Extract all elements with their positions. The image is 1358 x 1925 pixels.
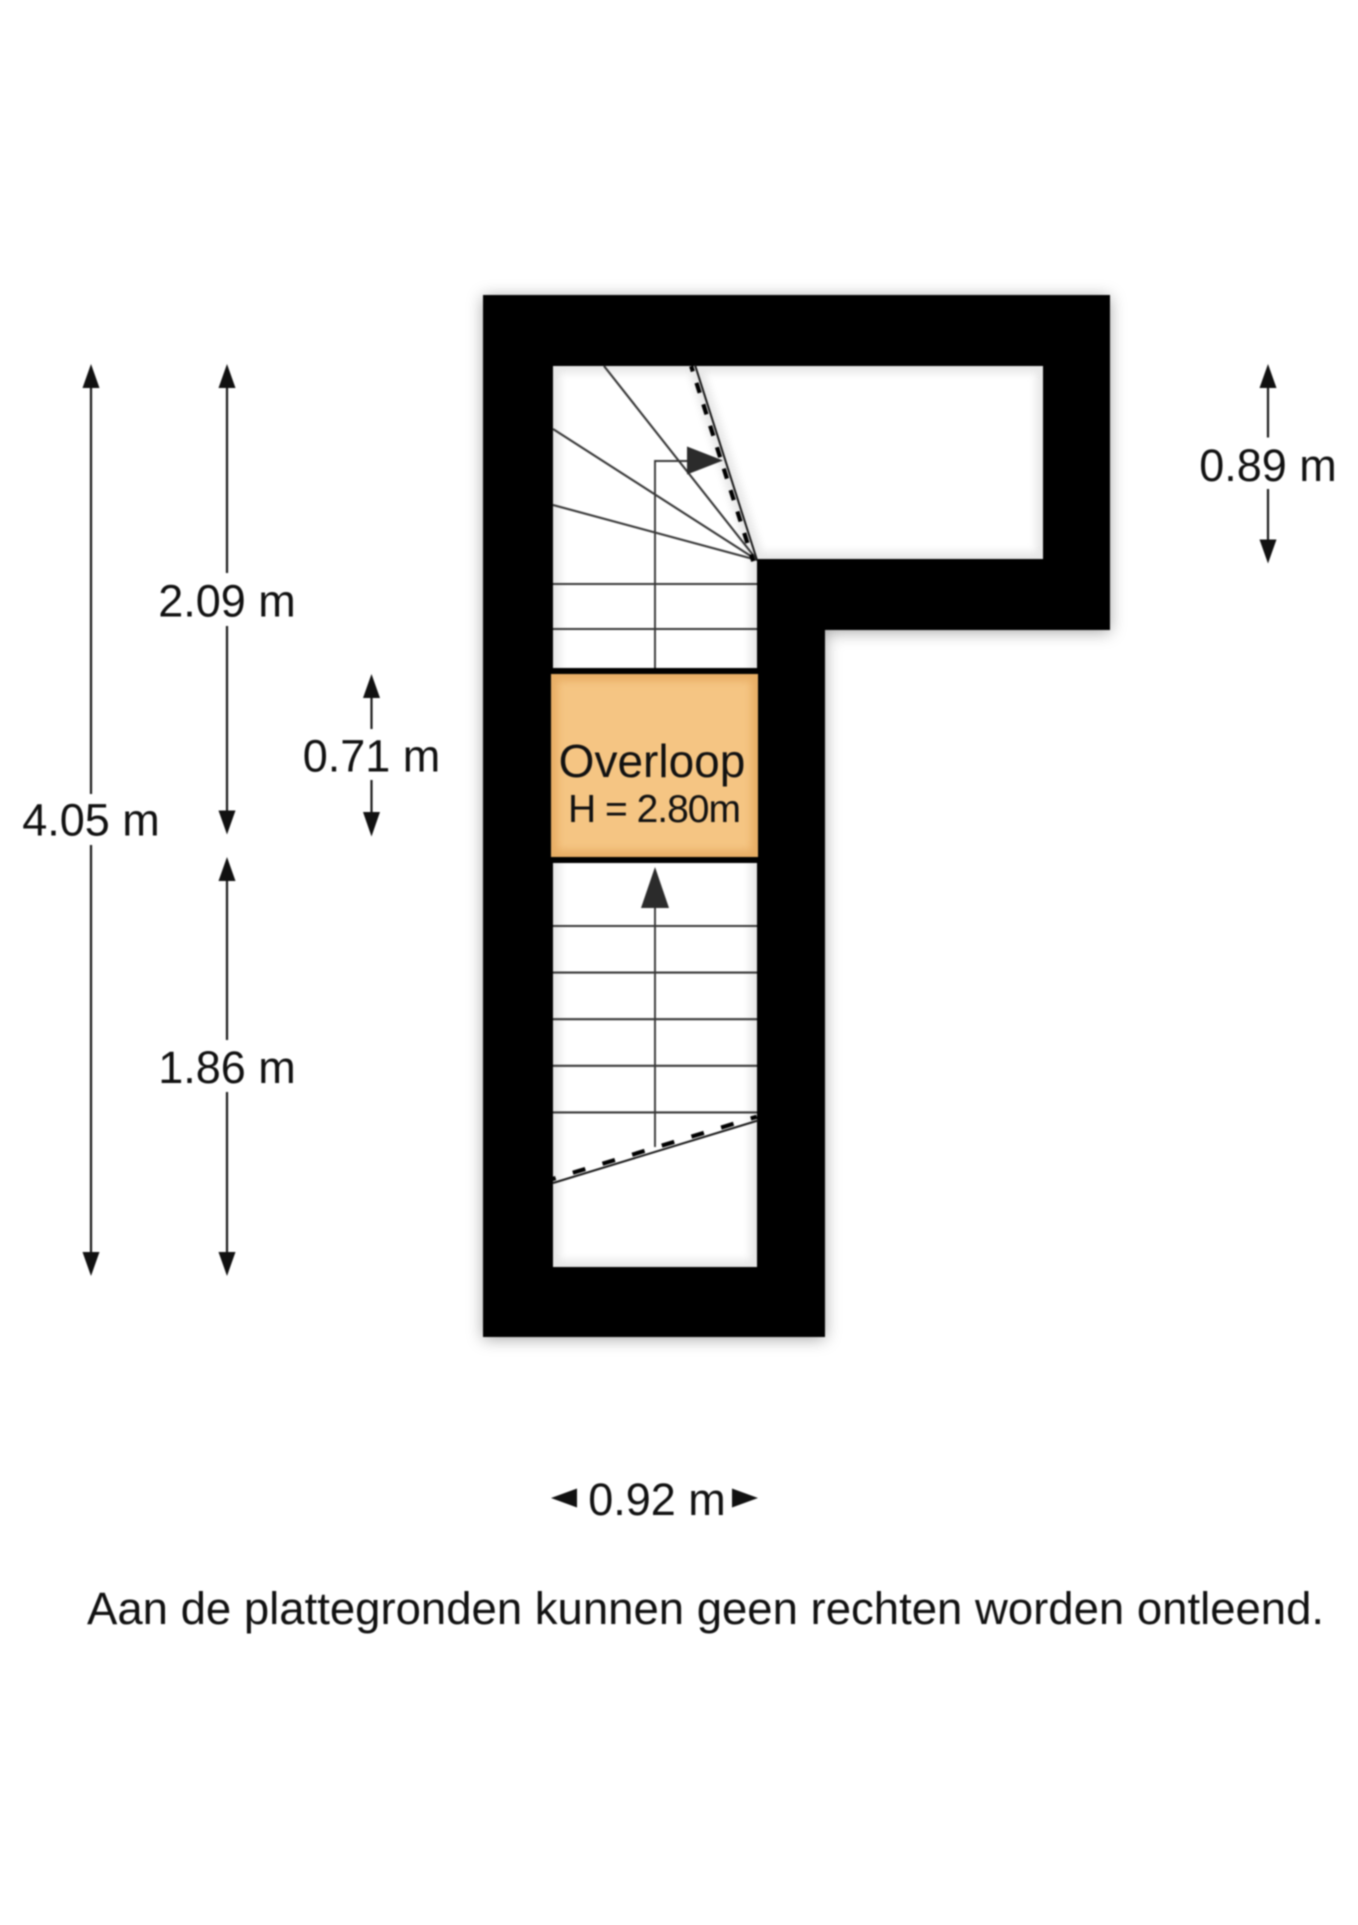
svg-text:Aan de plattegronden kunnen ge: Aan de plattegronden kunnen geen rechten… (87, 1583, 1324, 1634)
svg-text:0.89 m: 0.89 m (1199, 440, 1337, 491)
svg-text:0.71 m: 0.71 m (303, 731, 441, 782)
svg-text:2.09 m: 2.09 m (158, 575, 296, 626)
svg-text:1.86 m: 1.86 m (158, 1042, 296, 1093)
svg-text:0.92 m: 0.92 m (588, 1474, 726, 1525)
svg-text:H = 2.80m: H = 2.80m (568, 788, 740, 831)
svg-text:4.05 m: 4.05 m (22, 795, 160, 846)
svg-text:Overloop: Overloop (559, 735, 746, 787)
